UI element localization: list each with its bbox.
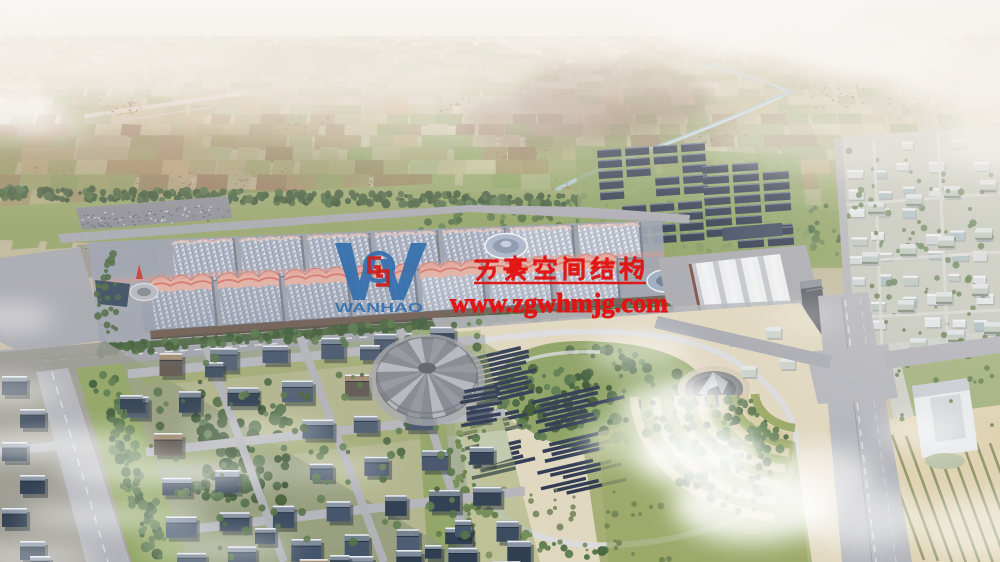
svg-text:www.zgwhmjg.com: www.zgwhmjg.com: [450, 288, 668, 318]
svg-text:WANHAO: WANHAO: [335, 300, 423, 315]
